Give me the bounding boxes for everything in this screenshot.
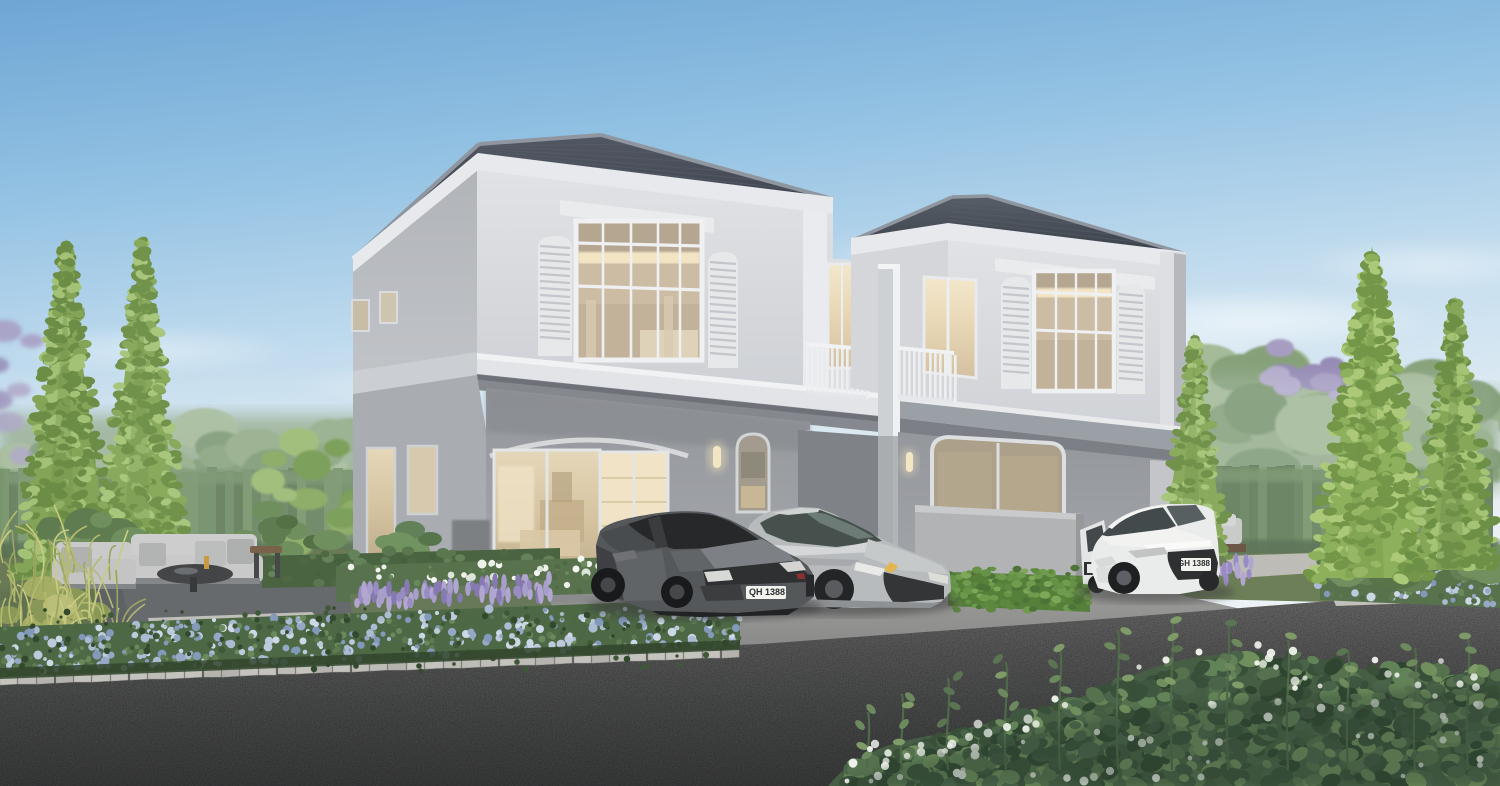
svg-text:GH 1388: GH 1388: [1178, 559, 1211, 568]
svg-text:QH 1388: QH 1388: [749, 587, 785, 597]
